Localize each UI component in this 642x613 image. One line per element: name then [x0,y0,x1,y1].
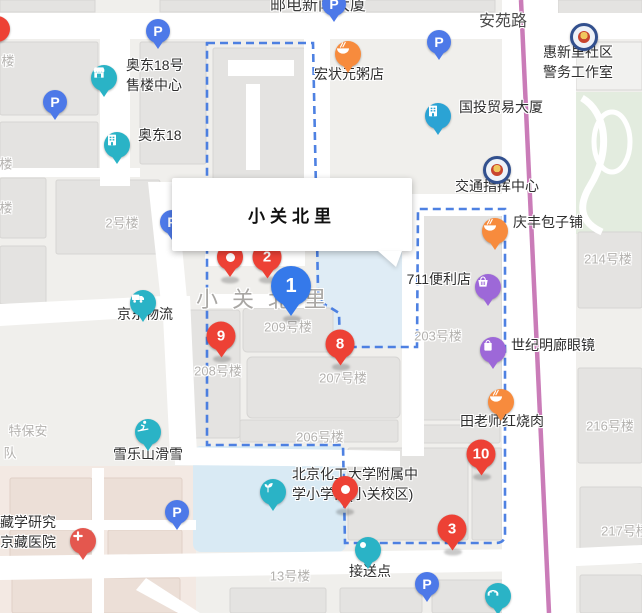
building-label: 楼 [1,51,14,70]
bag-pin-century-glasses[interactable] [480,337,506,363]
bridge-pin-footbridge[interactable] [485,583,511,609]
storefront-pin-aodong18-sales-center[interactable] [91,65,117,91]
parking-pin-1[interactable]: P [146,19,170,43]
building-label: 216号楼 [586,416,634,435]
police-badge-icon [491,164,503,176]
building-pin-guotou-trade-tower[interactable] [425,103,451,129]
map-marker-10[interactable]: 10 [467,440,496,469]
police-badge-icon [578,31,590,43]
food-pin-qingfeng-baozi[interactable] [482,218,508,244]
building-pin-aodong18[interactable] [104,132,130,158]
poi-label-zangxue-hospital[interactable]: 藏学研究 京藏医院 [0,513,56,552]
cross-icon [70,528,86,544]
poi-label-aodong18[interactable]: 奥东18 [138,126,182,146]
police-badge-pin-huixinli-police-room[interactable] [570,23,598,51]
poi-label-711-store[interactable]: 711便利店 [407,270,471,290]
building-icon [425,103,441,119]
dot-icon [355,537,371,553]
food-icon [482,218,498,234]
basket-pin-711-store[interactable] [475,274,501,300]
poi-label-century-glasses[interactable]: 世纪明廊眼镜 [511,336,595,356]
storefront-icon [91,65,107,81]
bridge-icon [485,583,501,599]
cross-pin-zangxue-hospital[interactable] [70,528,96,554]
building-label: 217号楼 [601,521,642,540]
poi-label-aodong18-sales-center[interactable]: 奥东18号 售楼中心 [126,56,184,95]
food-icon [488,389,504,405]
bag-icon [480,337,496,353]
parking-pin-6[interactable]: P [415,572,439,596]
basket-icon [475,274,491,290]
area-label-xiaoguanbeili: 小关北里 [196,282,340,314]
sprout-pin-buct-affiliated-school[interactable] [260,479,286,505]
building-label: 队 [3,443,16,462]
building-label: 203号楼 [414,326,462,345]
dot-pin-pickup-point[interactable] [355,537,381,563]
partial-marker[interactable] [0,16,10,42]
building-label: 楼 [0,198,13,217]
truck-icon [130,290,146,306]
parking-pin-3[interactable]: P [427,30,451,54]
food-pin-hongzhuangyuan-porridge[interactable] [335,41,361,67]
info-window[interactable]: 小关北里 [172,178,412,251]
parking-pin-2[interactable]: P [43,90,67,114]
map-marker-8[interactable]: 8 [326,330,355,359]
building-label: 楼 [0,154,13,173]
info-window-pointer [378,251,402,267]
white-dot [226,253,235,262]
parking-pin-5[interactable]: P [165,500,189,524]
truck-pin-jd-logistics[interactable] [130,290,156,316]
building-icon [104,132,120,148]
food-pin-tianlaoshi-braised-pork[interactable] [488,389,514,415]
map-marker-1[interactable]: 1 [271,266,311,306]
building-label: 2号楼 [105,213,138,232]
red-dot-marker-2[interactable] [332,476,358,502]
map-canvas[interactable]: 邮电新闻大厦 安苑路 小关北里 2号楼209号楼208号楼207号楼206号楼2… [0,0,642,613]
map-marker-3[interactable]: 3 [438,515,467,544]
building-label: 13号楼 [270,566,310,585]
building-label-cut-top: 邮电新闻大厦 [270,0,366,15]
building-label: 214号楼 [584,249,632,268]
map-marker-9[interactable]: 9 [207,322,236,351]
building-label: 特保安 [8,421,47,440]
ski-pin-xueleshan-ski[interactable] [135,419,161,445]
police-badge-pin-traffic-command-center[interactable] [483,156,511,184]
poi-label-qingfeng-baozi[interactable]: 庆丰包子铺 [513,213,583,233]
ski-icon [135,419,151,435]
food-icon [335,41,351,57]
poi-label-guotou-trade-tower[interactable]: 国投贸易大厦 [459,98,543,118]
white-dot [341,485,350,494]
building-label: 206号楼 [296,427,344,446]
sprout-icon [260,479,276,495]
road-name-anyuan: 安苑路 [479,7,527,31]
info-window-title: 小关北里 [248,202,336,227]
